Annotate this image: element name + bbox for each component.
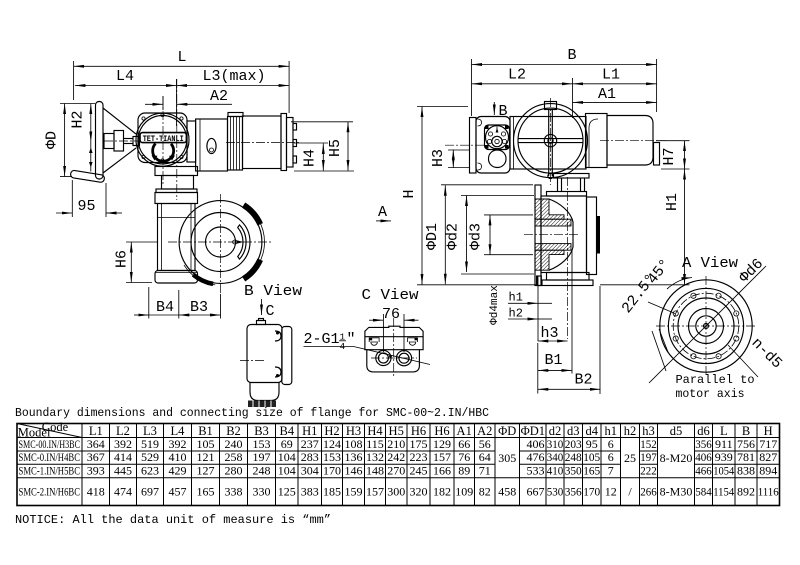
svg-text:383: 383 (301, 485, 319, 499)
svg-text:H3: H3 (430, 149, 447, 167)
svg-text:105: 105 (197, 437, 215, 451)
svg-text:95: 95 (77, 198, 95, 215)
svg-text:533: 533 (527, 464, 545, 478)
svg-text:330: 330 (253, 485, 271, 499)
svg-text:458: 458 (498, 485, 516, 499)
svg-text:B View: B View (244, 283, 302, 300)
svg-text:H6: H6 (114, 250, 131, 268)
svg-text:356: 356 (695, 437, 712, 451)
svg-text:350: 350 (565, 464, 582, 478)
svg-text:d4: d4 (586, 424, 599, 438)
svg-text:B1: B1 (544, 352, 562, 369)
svg-text:h3: h3 (642, 424, 655, 438)
svg-text:623: 623 (141, 464, 159, 478)
svg-text:B: B (499, 103, 508, 120)
svg-text:223: 223 (410, 450, 428, 464)
svg-text:H2: H2 (70, 110, 87, 128)
svg-text:n-d5: n-d5 (748, 335, 785, 372)
svg-text:C View: C View (362, 287, 419, 304)
svg-text:237: 237 (301, 437, 319, 451)
svg-text:197: 197 (253, 450, 271, 464)
svg-text:56: 56 (479, 437, 491, 451)
svg-text:1116: 1116 (758, 485, 779, 499)
svg-text:8-M20: 8-M20 (660, 451, 693, 465)
svg-text:406: 406 (527, 437, 545, 451)
svg-text:410: 410 (169, 450, 187, 464)
svg-text:ΦD: ΦD (498, 424, 516, 438)
svg-text:364: 364 (87, 437, 105, 451)
svg-text:248: 248 (565, 450, 582, 464)
svg-text:125: 125 (278, 485, 296, 499)
svg-text:939: 939 (715, 450, 733, 464)
svg-text:Φd4max: Φd4max (489, 285, 501, 325)
svg-text:d3: d3 (567, 424, 580, 438)
svg-text:153: 153 (253, 437, 271, 451)
svg-text:H4: H4 (302, 149, 319, 167)
svg-text:B3: B3 (254, 424, 269, 438)
svg-text:ΦD1: ΦD1 (521, 424, 545, 438)
svg-text:6: 6 (608, 437, 614, 451)
svg-text:A1: A1 (598, 86, 616, 103)
svg-text:418: 418 (87, 485, 105, 499)
svg-text:H6: H6 (434, 424, 449, 438)
svg-text:153: 153 (323, 450, 341, 464)
svg-text:165: 165 (197, 485, 215, 499)
svg-text:445: 445 (114, 464, 132, 478)
svg-text:146: 146 (345, 464, 363, 478)
svg-text:h3: h3 (540, 325, 558, 342)
svg-text:340: 340 (547, 450, 564, 464)
svg-text:H: H (764, 424, 773, 438)
svg-text:210: 210 (387, 437, 405, 451)
svg-text:121: 121 (197, 450, 215, 464)
svg-text:124: 124 (323, 437, 341, 451)
svg-text:170: 170 (323, 464, 341, 478)
svg-text:108: 108 (345, 437, 363, 451)
svg-text:827: 827 (759, 450, 777, 464)
svg-text:H6: H6 (411, 424, 426, 438)
svg-text:165: 165 (583, 464, 600, 478)
svg-text:A: A (378, 204, 387, 221)
svg-text:8-M30: 8-M30 (660, 485, 693, 499)
svg-text:406: 406 (695, 450, 712, 464)
svg-text:466: 466 (695, 464, 712, 478)
svg-text:838: 838 (737, 464, 755, 478)
svg-text:d2: d2 (549, 424, 562, 438)
svg-text:76: 76 (458, 450, 470, 464)
svg-text:240: 240 (225, 437, 243, 451)
svg-text:129: 129 (433, 437, 451, 451)
svg-text:310: 310 (547, 437, 564, 451)
svg-text:717: 717 (759, 437, 777, 451)
svg-text:B4: B4 (156, 299, 174, 316)
svg-text:258: 258 (225, 450, 243, 464)
svg-text:152: 152 (640, 437, 657, 451)
svg-text:SMC-00.IN/H3BC: SMC-00.IN/H3BC (19, 437, 81, 451)
svg-text:A1: A1 (457, 424, 472, 438)
svg-text:429: 429 (169, 464, 187, 478)
svg-text:L3(max): L3(max) (202, 68, 265, 85)
svg-text:530: 530 (547, 485, 564, 499)
svg-text:76: 76 (382, 306, 400, 323)
svg-text:L2: L2 (508, 67, 526, 84)
svg-text:Φd6: Φd6 (736, 255, 767, 286)
svg-text:H: H (401, 189, 418, 198)
svg-text:NOTICE: All the data unit of m: NOTICE: All the data unit of measure is … (15, 513, 331, 527)
svg-text:L: L (177, 49, 186, 66)
svg-text:motor axis: motor axis (676, 387, 745, 401)
svg-text:159: 159 (345, 485, 363, 499)
svg-text:392: 392 (114, 437, 132, 451)
svg-text:B3: B3 (190, 299, 208, 316)
svg-text:109: 109 (455, 485, 473, 499)
svg-text:148: 148 (366, 464, 384, 478)
svg-text:1154: 1154 (713, 485, 734, 499)
svg-text:356: 356 (565, 485, 582, 499)
svg-text:d5: d5 (670, 424, 683, 438)
svg-text:300: 300 (387, 485, 405, 499)
svg-text:A View: A View (682, 255, 738, 272)
svg-text:474: 474 (114, 485, 132, 499)
svg-text:25: 25 (624, 451, 636, 465)
svg-text:d6: d6 (697, 424, 710, 438)
svg-text:7: 7 (608, 464, 614, 478)
svg-text:105: 105 (583, 450, 600, 464)
svg-text:392: 392 (169, 437, 187, 451)
svg-text:66: 66 (458, 437, 470, 451)
svg-text:197: 197 (640, 450, 657, 464)
svg-text:6: 6 (608, 450, 614, 464)
svg-text:175: 175 (410, 437, 428, 451)
svg-text:L4: L4 (116, 68, 134, 85)
svg-text:2-G1: 2-G1 (304, 331, 340, 348)
svg-text:280: 280 (225, 464, 243, 478)
svg-text:519: 519 (141, 437, 159, 451)
svg-text:157: 157 (433, 450, 451, 464)
svg-text:756: 756 (737, 437, 755, 451)
svg-text:B4: B4 (280, 424, 295, 438)
svg-text:H5: H5 (327, 139, 344, 157)
svg-text:SMC-1.IN/H5BC: SMC-1.IN/H5BC (19, 464, 81, 478)
svg-text:Φd2: Φd2 (445, 223, 462, 250)
svg-text:/: / (628, 485, 632, 499)
svg-text:A2: A2 (477, 424, 492, 438)
svg-text:B2: B2 (574, 372, 592, 389)
svg-text:L2: L2 (116, 424, 130, 438)
svg-text:H7: H7 (661, 147, 678, 165)
svg-text:h2: h2 (509, 307, 523, 321)
svg-text:283: 283 (301, 450, 319, 464)
svg-text:H1: H1 (302, 424, 317, 438)
svg-text:410: 410 (547, 464, 564, 478)
svg-text:393: 393 (87, 464, 105, 478)
svg-text:170: 170 (583, 485, 600, 499)
svg-text:64: 64 (479, 450, 491, 464)
svg-text:95: 95 (586, 437, 598, 451)
svg-text:222: 222 (640, 464, 657, 478)
svg-text:": " (347, 331, 356, 348)
svg-text:89: 89 (458, 464, 470, 478)
svg-text:ΦD1: ΦD1 (424, 223, 441, 250)
svg-text:h2: h2 (624, 424, 637, 438)
svg-text:166: 166 (433, 464, 451, 478)
svg-text:242: 242 (387, 450, 405, 464)
svg-text:305: 305 (498, 451, 516, 465)
svg-text:B1: B1 (198, 424, 213, 438)
svg-text:L: L (720, 424, 728, 438)
svg-text:367: 367 (87, 450, 105, 464)
svg-text:12: 12 (605, 485, 617, 499)
svg-text:SMC-2.IN/H6BC: SMC-2.IN/H6BC (19, 485, 81, 499)
svg-text:H4: H4 (367, 424, 383, 438)
svg-text:414: 414 (114, 450, 132, 464)
svg-text:104: 104 (278, 450, 296, 464)
svg-text:320: 320 (410, 485, 428, 499)
svg-text:B: B (742, 424, 750, 438)
svg-text:270: 270 (387, 464, 405, 478)
svg-text:L4: L4 (171, 424, 186, 438)
svg-text:894: 894 (759, 464, 777, 478)
svg-text:127: 127 (197, 464, 215, 478)
svg-text:136: 136 (345, 450, 363, 464)
svg-text:SMC-0.IN/H4BC: SMC-0.IN/H4BC (19, 450, 81, 464)
svg-text:157: 157 (366, 485, 384, 499)
svg-text:ΦD: ΦD (44, 131, 61, 149)
svg-text:132: 132 (366, 450, 384, 464)
svg-text:h1: h1 (509, 291, 523, 305)
svg-text:h1: h1 (605, 424, 618, 438)
svg-text:Parallel to: Parallel to (676, 373, 755, 387)
svg-text:911: 911 (715, 437, 733, 451)
svg-text:529: 529 (141, 450, 159, 464)
svg-text:71: 71 (479, 464, 491, 478)
svg-text:A2: A2 (210, 88, 228, 105)
svg-text:115: 115 (366, 437, 384, 451)
svg-text:697: 697 (141, 485, 159, 499)
svg-text:667: 667 (527, 485, 545, 499)
svg-text:781: 781 (737, 450, 755, 464)
svg-text:Φd3: Φd3 (468, 223, 485, 250)
svg-text:338: 338 (225, 485, 243, 499)
svg-text:L3: L3 (143, 424, 157, 438)
svg-text:104: 104 (278, 464, 296, 478)
svg-text:C: C (266, 303, 275, 320)
svg-text:892: 892 (737, 485, 755, 499)
svg-text:82: 82 (479, 485, 491, 499)
svg-text:245: 245 (410, 464, 428, 478)
svg-text:476: 476 (527, 450, 545, 464)
svg-text:248: 248 (253, 464, 271, 478)
svg-text:H2: H2 (324, 424, 339, 438)
svg-text:203: 203 (565, 437, 582, 451)
svg-text:H5: H5 (389, 424, 404, 438)
svg-text:L1: L1 (89, 424, 103, 438)
svg-text:185: 185 (323, 485, 341, 499)
svg-text:H1: H1 (664, 193, 681, 211)
svg-text:B2: B2 (226, 424, 241, 438)
svg-text:L1: L1 (602, 67, 620, 84)
svg-text:266: 266 (640, 485, 657, 499)
svg-text:B: B (567, 47, 576, 64)
svg-text:1054: 1054 (713, 464, 734, 478)
svg-text:584: 584 (695, 485, 712, 499)
svg-text:Boundary dimensions and connec: Boundary dimensions and connecting size … (15, 406, 489, 420)
svg-text:69: 69 (281, 437, 293, 451)
svg-text:182: 182 (433, 485, 451, 499)
svg-text:304: 304 (301, 464, 319, 478)
svg-text:H3: H3 (346, 424, 361, 438)
svg-text:457: 457 (169, 485, 187, 499)
